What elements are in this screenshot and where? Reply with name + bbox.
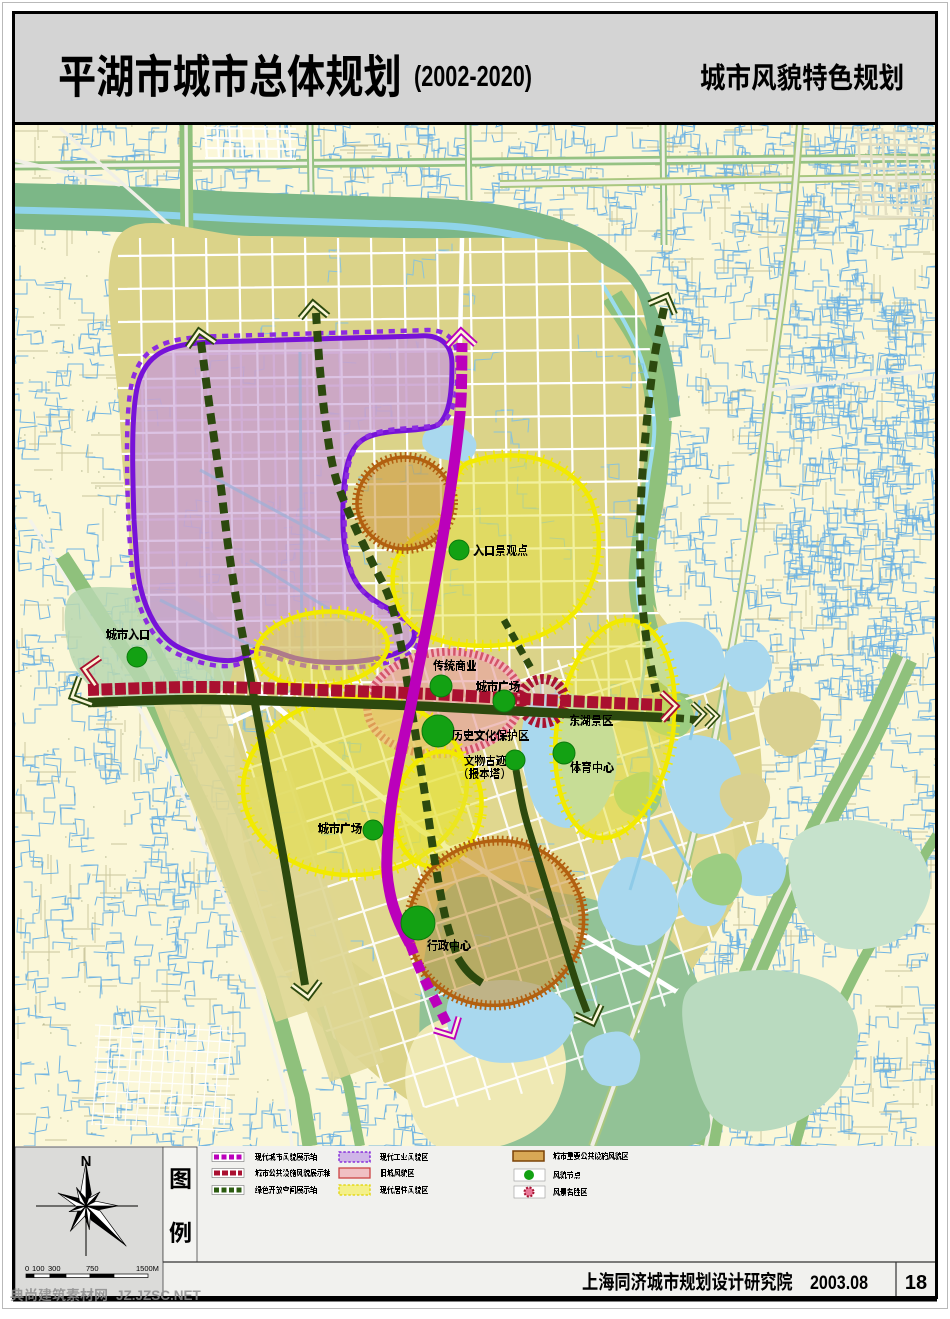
svg-text:N: N	[81, 1153, 92, 1170]
svg-text:300: 300	[48, 1264, 61, 1273]
svg-text:JZ.JZSC.NET: JZ.JZSC.NET	[116, 1288, 202, 1303]
svg-text:0: 0	[25, 1264, 29, 1273]
svg-text:18: 18	[905, 1272, 927, 1294]
svg-text:100: 100	[32, 1264, 45, 1273]
svg-text:2003.08: 2003.08	[810, 1273, 868, 1294]
svg-text:(2002-2020): (2002-2020)	[414, 61, 532, 93]
svg-text:1500M: 1500M	[136, 1264, 159, 1273]
svg-text:750: 750	[86, 1264, 99, 1273]
